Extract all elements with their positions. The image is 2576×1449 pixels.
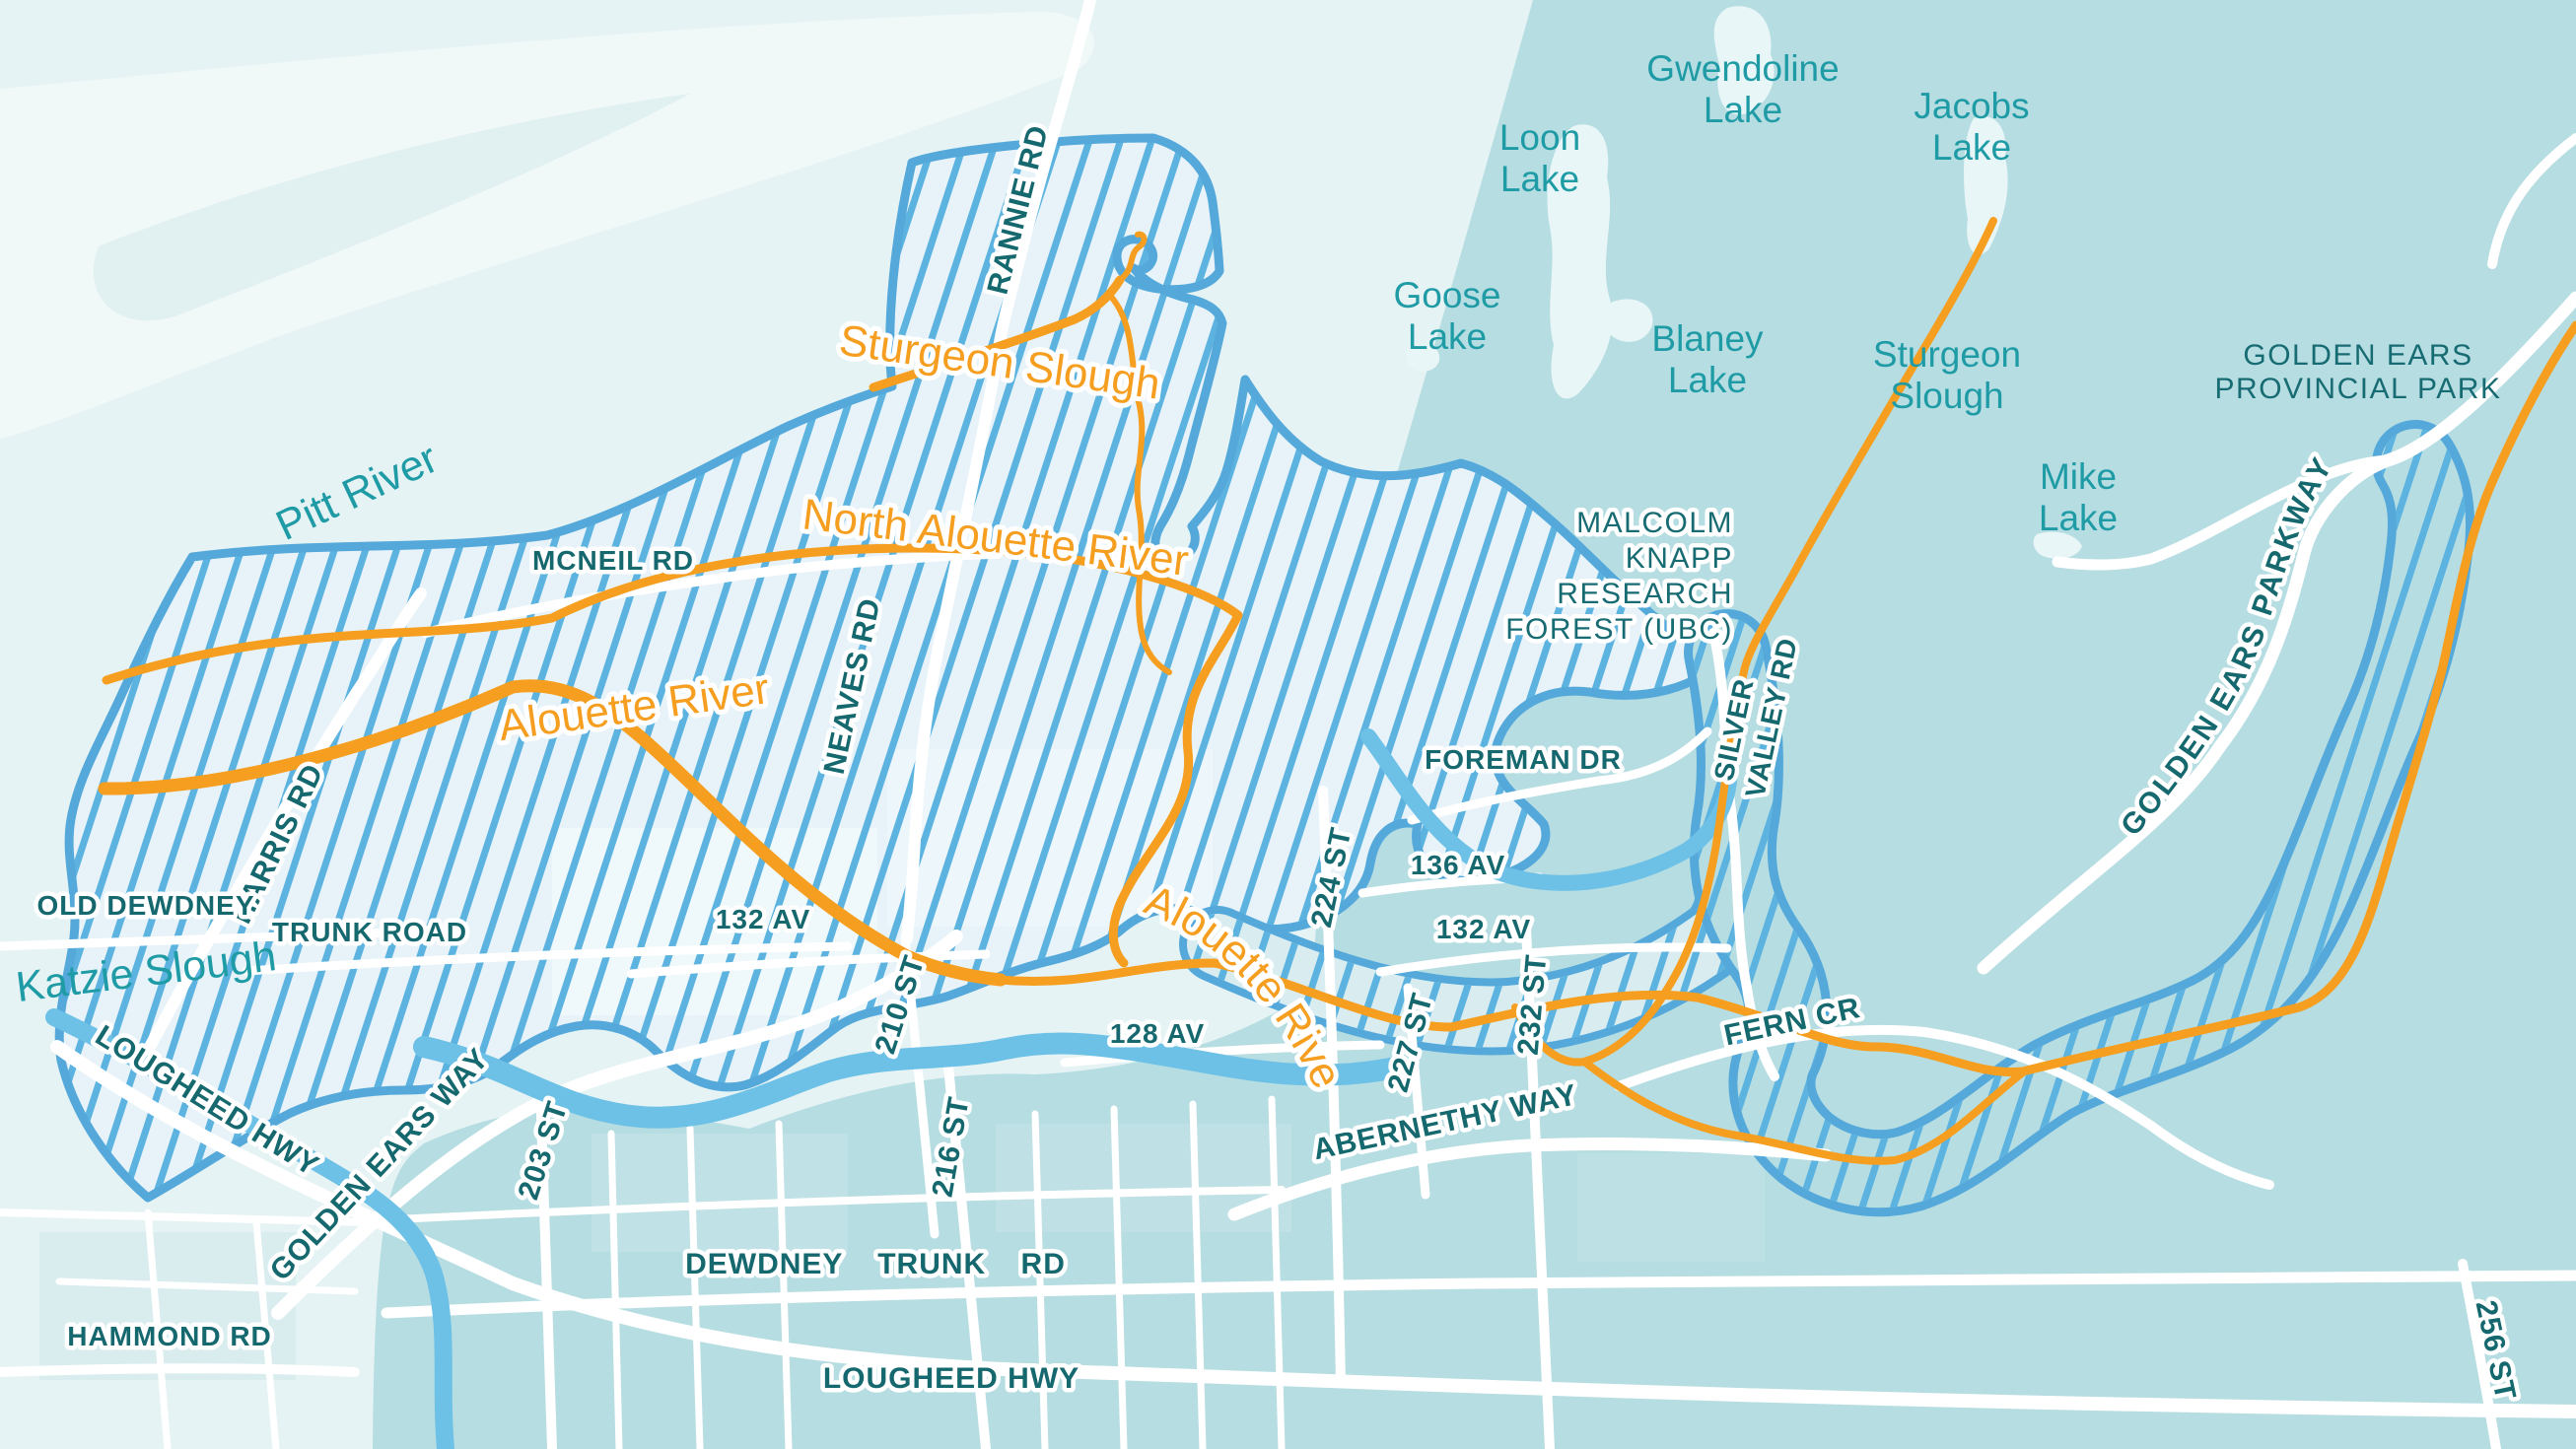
lake-label-line1: Goose bbox=[1393, 275, 1500, 315]
watershed-map: Gwendoline Lake Jacobs Lake Loon Lake Go… bbox=[0, 0, 2576, 1449]
area-label-line4: FOREST (UBC) bbox=[1505, 613, 1733, 646]
lake-label-line1: Blaney bbox=[1651, 318, 1764, 359]
label-blaney-lake: Blaney Lake bbox=[1651, 318, 1764, 400]
area-label-line2: KNAPP bbox=[1626, 542, 1733, 575]
lake-label-line2: Lake bbox=[1668, 360, 1747, 400]
label-sturgeon-slough-east: Sturgeon Slough bbox=[1873, 334, 2021, 416]
map-canvas: Gwendoline Lake Jacobs Lake Loon Lake Go… bbox=[0, 0, 2576, 1449]
area-label-line2: PROVINCIAL PARK bbox=[2215, 373, 2502, 405]
lake-label-line2: Lake bbox=[1932, 127, 2011, 168]
area-label-line1: MALCOLM bbox=[1576, 507, 1733, 539]
lake-label-line1: Sturgeon bbox=[1873, 334, 2021, 375]
label-132-av-e: 132 AV bbox=[1436, 914, 1531, 944]
urban-parcel-patch bbox=[592, 1134, 848, 1252]
lake-label-line2: Lake bbox=[1500, 159, 1579, 199]
label-trunk-road: TRUNK ROAD bbox=[272, 917, 467, 947]
label-dewdney-trunk-rd: DEWDNEY TRUNK RD bbox=[685, 1248, 1066, 1280]
label-128-av: 128 AV bbox=[1110, 1018, 1205, 1049]
lake-label-line2: Lake bbox=[2039, 498, 2118, 538]
area-label-line1: GOLDEN EARS bbox=[2243, 339, 2472, 372]
lake-label-line1: Jacobs bbox=[1914, 86, 2029, 126]
hammond-road bbox=[0, 1368, 355, 1372]
label-132-av-w: 132 AV bbox=[716, 904, 810, 934]
label-goose-lake: Goose Lake bbox=[1393, 275, 1500, 357]
label-mike-lake: Mike Lake bbox=[2039, 456, 2118, 538]
lake-label-line1: Loon bbox=[1499, 117, 1580, 158]
label-mcneil-rd: MCNEIL RD bbox=[532, 545, 694, 576]
urban-parcel-patch bbox=[1577, 1153, 1765, 1262]
label-foreman-dr: FOREMAN DR bbox=[1425, 744, 1622, 775]
label-136-av: 136 AV bbox=[1411, 850, 1505, 880]
label-old-dewdney: OLD DEWDNEY bbox=[37, 890, 255, 921]
label-loon-lake: Loon Lake bbox=[1499, 117, 1580, 199]
lake-label-line1: Gwendoline bbox=[1646, 48, 1839, 89]
lake-label-line1: Mike bbox=[2040, 456, 2117, 497]
lake-label-line2: Slough bbox=[1890, 376, 2003, 416]
label-hammond-rd: HAMMOND RD bbox=[67, 1321, 272, 1351]
lake-label-line2: Lake bbox=[1408, 316, 1487, 357]
label-lougheed-hwy-s: LOUGHEED HWY bbox=[823, 1362, 1079, 1395]
area-label-line3: RESEARCH bbox=[1557, 578, 1733, 610]
label-golden-ears-provincial-park: GOLDEN EARS PROVINCIAL PARK bbox=[2215, 339, 2502, 405]
lake-label-line2: Lake bbox=[1704, 90, 1782, 130]
